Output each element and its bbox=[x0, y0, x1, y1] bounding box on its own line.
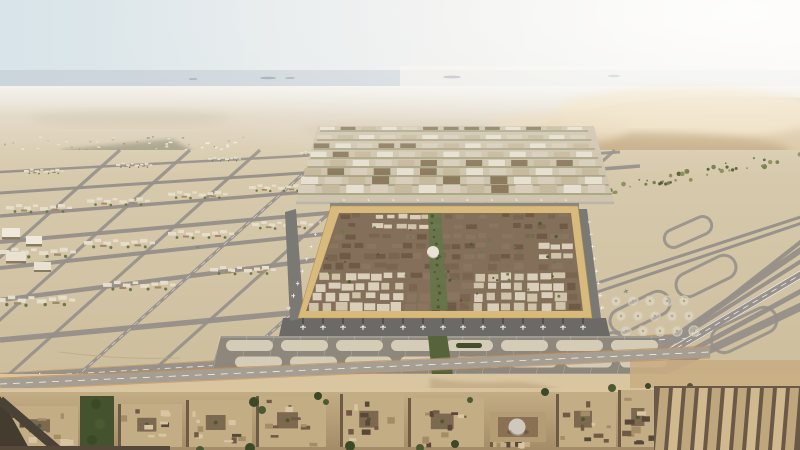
district-block bbox=[467, 185, 484, 193]
tree bbox=[448, 279, 451, 282]
tree bbox=[496, 279, 498, 281]
district-block bbox=[322, 185, 339, 193]
roof bbox=[417, 234, 427, 239]
rooftop-detail bbox=[229, 420, 236, 425]
jet-bridge bbox=[542, 318, 544, 324]
roof bbox=[502, 223, 509, 227]
roof bbox=[395, 283, 403, 290]
roof bbox=[555, 293, 567, 302]
roof bbox=[352, 254, 360, 259]
rooftop-detail bbox=[348, 429, 353, 434]
roof bbox=[381, 283, 389, 290]
tree bbox=[500, 216, 503, 219]
roof bbox=[340, 253, 351, 259]
roof bbox=[447, 292, 460, 300]
jet-bridge bbox=[462, 318, 464, 324]
roof bbox=[384, 273, 393, 278]
roof bbox=[358, 234, 366, 239]
roof bbox=[332, 274, 340, 280]
rooftop-detail bbox=[560, 436, 565, 440]
rooftop-detail bbox=[54, 435, 61, 439]
roof bbox=[323, 264, 331, 270]
roof bbox=[338, 224, 347, 228]
roof bbox=[464, 254, 474, 259]
rooftop-detail bbox=[506, 442, 510, 448]
roof bbox=[562, 244, 573, 250]
district-block bbox=[515, 185, 532, 193]
rooftop-detail bbox=[604, 439, 609, 443]
roof bbox=[528, 303, 537, 310]
rooftop-detail bbox=[301, 424, 306, 427]
roof bbox=[352, 213, 360, 217]
roof bbox=[527, 273, 537, 280]
roof bbox=[384, 225, 392, 229]
roof bbox=[514, 303, 525, 311]
tree bbox=[377, 253, 379, 255]
roof bbox=[513, 215, 523, 220]
shrub bbox=[658, 182, 661, 185]
rooftop-detail bbox=[365, 402, 370, 407]
rooftop-detail bbox=[271, 435, 279, 438]
jet-bridge bbox=[322, 318, 324, 324]
roof bbox=[488, 264, 497, 270]
roof bbox=[391, 302, 401, 311]
roof bbox=[551, 253, 561, 259]
roof bbox=[536, 213, 545, 216]
district-block bbox=[538, 177, 555, 184]
stand-pad bbox=[226, 340, 273, 351]
roof bbox=[467, 215, 474, 218]
roof bbox=[445, 214, 452, 218]
rooftop-detail bbox=[29, 437, 37, 443]
roof bbox=[563, 253, 572, 258]
roof bbox=[479, 223, 490, 228]
rooftop-detail bbox=[291, 417, 301, 420]
roof bbox=[488, 283, 496, 289]
roof bbox=[416, 243, 425, 248]
roof bbox=[369, 234, 379, 238]
roof bbox=[420, 294, 430, 302]
shrub bbox=[644, 183, 647, 186]
shrub bbox=[689, 178, 693, 182]
tree bbox=[476, 293, 478, 295]
roof bbox=[560, 224, 568, 229]
stand-pad bbox=[336, 340, 383, 351]
tree bbox=[529, 235, 532, 238]
roof bbox=[479, 215, 486, 219]
shrub bbox=[653, 181, 656, 184]
roof bbox=[466, 224, 477, 229]
district-block bbox=[588, 185, 605, 193]
jet-bridge bbox=[562, 318, 564, 324]
tree bbox=[438, 291, 441, 294]
roof bbox=[541, 292, 552, 298]
tree bbox=[344, 261, 346, 263]
jet-bridge bbox=[342, 318, 344, 324]
rooftop-detail bbox=[121, 415, 127, 421]
tree bbox=[323, 399, 329, 405]
rooftop-detail bbox=[238, 437, 245, 442]
tree bbox=[553, 261, 556, 264]
roof bbox=[342, 244, 351, 248]
roof bbox=[392, 244, 403, 248]
roof bbox=[539, 243, 550, 249]
district-block bbox=[514, 177, 531, 184]
roof bbox=[549, 224, 559, 228]
rooftop-detail bbox=[148, 435, 154, 437]
roof bbox=[461, 283, 474, 289]
tree bbox=[518, 250, 521, 253]
roof bbox=[374, 263, 386, 268]
roof bbox=[490, 233, 498, 238]
rooftop-detail bbox=[518, 443, 524, 448]
roof bbox=[319, 273, 329, 280]
roof bbox=[526, 263, 536, 269]
tree bbox=[608, 384, 616, 392]
rooftop-detail bbox=[586, 401, 590, 407]
tree bbox=[437, 305, 440, 308]
roof bbox=[450, 263, 459, 269]
tree bbox=[404, 274, 406, 276]
district-block bbox=[372, 177, 389, 184]
roof bbox=[454, 233, 462, 237]
district-block bbox=[585, 177, 602, 184]
district-block bbox=[301, 177, 318, 184]
roof bbox=[515, 292, 525, 300]
rooftop-detail bbox=[163, 412, 170, 416]
tree bbox=[249, 397, 259, 407]
rooftop-detail bbox=[584, 437, 591, 441]
shrub bbox=[667, 181, 670, 184]
tree bbox=[433, 236, 436, 239]
rooftop-detail bbox=[581, 411, 590, 416]
tree bbox=[326, 257, 328, 259]
rooftop-detail bbox=[354, 404, 358, 410]
tree bbox=[645, 383, 651, 389]
district-block bbox=[346, 185, 363, 193]
rooftop-detail bbox=[592, 423, 596, 426]
roof bbox=[501, 293, 511, 300]
roof bbox=[566, 272, 578, 278]
foreground-dome-pavilion bbox=[490, 412, 546, 442]
roof bbox=[342, 284, 354, 291]
tree bbox=[91, 399, 101, 409]
roof bbox=[487, 293, 495, 300]
roof bbox=[334, 235, 343, 240]
roof bbox=[330, 244, 339, 248]
tree bbox=[467, 397, 473, 403]
jet-bridge bbox=[582, 318, 584, 324]
roof bbox=[477, 254, 485, 259]
roof bbox=[316, 284, 326, 292]
tree bbox=[550, 279, 553, 282]
roof bbox=[348, 223, 355, 227]
rooftop-detail bbox=[622, 431, 631, 436]
district-block bbox=[490, 177, 507, 184]
tree bbox=[451, 440, 459, 448]
airport-render: Aerial CGI render of a vast desert airpo… bbox=[0, 0, 800, 450]
roof bbox=[364, 214, 372, 218]
tree bbox=[561, 230, 563, 232]
rooftop-detail bbox=[451, 412, 458, 415]
tree bbox=[431, 214, 435, 218]
roof bbox=[562, 234, 569, 239]
roof bbox=[346, 273, 356, 280]
roof bbox=[489, 223, 498, 227]
rooftop-detail bbox=[38, 418, 47, 421]
roof bbox=[527, 294, 537, 302]
roof bbox=[380, 244, 388, 249]
jet-bridge bbox=[362, 318, 364, 324]
tree bbox=[508, 279, 511, 282]
tree bbox=[569, 262, 571, 264]
roof bbox=[514, 263, 523, 270]
roof bbox=[360, 224, 367, 229]
jet-bridge bbox=[522, 318, 524, 324]
roof bbox=[525, 213, 534, 217]
roof bbox=[452, 254, 460, 259]
tree bbox=[95, 419, 105, 429]
roof bbox=[559, 213, 568, 216]
rooftop-detail bbox=[285, 407, 293, 412]
roof bbox=[452, 244, 461, 249]
roof bbox=[367, 244, 376, 249]
roof bbox=[537, 224, 546, 229]
roof bbox=[548, 214, 555, 218]
roof bbox=[364, 253, 376, 259]
roof bbox=[326, 293, 336, 302]
roof bbox=[335, 263, 343, 270]
rooftop-detail bbox=[60, 439, 68, 446]
rooftop-detail bbox=[232, 434, 241, 437]
rooftop-detail bbox=[265, 424, 273, 429]
roof bbox=[513, 223, 521, 228]
tree bbox=[470, 243, 473, 246]
rooftop-detail bbox=[160, 422, 168, 425]
rooftop-detail bbox=[349, 438, 356, 441]
tree bbox=[465, 302, 468, 305]
planted-pad bbox=[456, 343, 482, 348]
tree bbox=[348, 280, 352, 284]
roof bbox=[345, 235, 355, 240]
district-block bbox=[491, 185, 508, 193]
roof bbox=[540, 284, 552, 291]
roof bbox=[476, 243, 485, 248]
jet-bridge bbox=[502, 318, 504, 324]
roof bbox=[355, 243, 364, 248]
roof bbox=[489, 254, 500, 261]
roof bbox=[525, 224, 533, 229]
roof bbox=[553, 272, 565, 278]
roof bbox=[567, 283, 575, 290]
district-block bbox=[325, 177, 342, 184]
district-block bbox=[443, 177, 460, 184]
district-block bbox=[419, 185, 436, 193]
tree bbox=[435, 243, 438, 246]
roof bbox=[542, 303, 552, 311]
roof bbox=[393, 293, 403, 300]
rooftop-detail bbox=[309, 443, 317, 447]
roof bbox=[409, 284, 417, 291]
rooftop-detail bbox=[624, 398, 631, 401]
rooftop-detail bbox=[642, 416, 650, 421]
rooftop-detail bbox=[433, 410, 440, 413]
roof bbox=[399, 214, 408, 219]
rooftop-detail bbox=[497, 443, 501, 448]
roof bbox=[476, 263, 486, 270]
district-block bbox=[396, 177, 413, 184]
tree bbox=[430, 222, 433, 225]
shrub bbox=[646, 180, 648, 182]
rooftop-detail bbox=[374, 426, 378, 430]
roof bbox=[466, 235, 476, 240]
roof bbox=[408, 224, 417, 229]
tree bbox=[433, 229, 435, 231]
roof bbox=[569, 304, 581, 310]
rooftop-detail bbox=[594, 434, 604, 438]
roof bbox=[397, 272, 405, 277]
roof bbox=[513, 235, 524, 240]
roof bbox=[539, 264, 549, 270]
shrub bbox=[629, 186, 631, 188]
shrub bbox=[621, 182, 626, 187]
rooftop-detail bbox=[360, 413, 368, 417]
roof bbox=[313, 293, 322, 301]
tree bbox=[555, 235, 558, 238]
stand-pad bbox=[281, 340, 328, 351]
roof bbox=[410, 215, 421, 219]
roof bbox=[456, 214, 464, 219]
tree bbox=[434, 271, 436, 273]
jet-bridge bbox=[442, 318, 444, 324]
rooftop-detail bbox=[362, 429, 371, 434]
tree bbox=[447, 270, 450, 273]
roof bbox=[501, 283, 511, 289]
roof bbox=[327, 254, 337, 261]
roof bbox=[564, 263, 575, 270]
tree bbox=[541, 388, 549, 396]
tree bbox=[436, 278, 438, 280]
roof bbox=[478, 233, 486, 238]
roof bbox=[358, 273, 370, 279]
roof bbox=[412, 264, 421, 269]
tree bbox=[435, 263, 438, 266]
tree bbox=[437, 299, 439, 301]
roof bbox=[465, 243, 475, 248]
stand-pad bbox=[501, 340, 548, 351]
roof bbox=[366, 292, 376, 298]
roof bbox=[556, 302, 566, 310]
roof bbox=[474, 294, 483, 302]
district-block bbox=[540, 185, 557, 193]
roof bbox=[463, 264, 472, 271]
rooftop-detail bbox=[365, 420, 370, 426]
rooftop-detail bbox=[422, 437, 429, 444]
roof bbox=[407, 293, 416, 301]
rooftop-detail bbox=[197, 420, 200, 423]
roof bbox=[355, 283, 364, 290]
roof bbox=[514, 274, 523, 281]
district-block bbox=[370, 185, 387, 193]
rooftop-detail bbox=[448, 425, 453, 431]
rooftop-detail bbox=[625, 420, 635, 425]
roof bbox=[380, 294, 389, 300]
roof bbox=[371, 274, 382, 281]
roof bbox=[336, 302, 348, 311]
roof bbox=[397, 224, 407, 229]
roof bbox=[474, 303, 482, 312]
rooftop-detail bbox=[607, 425, 611, 428]
tree bbox=[538, 222, 542, 226]
tree bbox=[514, 246, 516, 248]
tree bbox=[416, 300, 418, 302]
tree bbox=[373, 226, 376, 229]
tree bbox=[506, 273, 509, 276]
roof bbox=[568, 294, 577, 300]
roof bbox=[387, 264, 398, 270]
roof bbox=[403, 243, 412, 249]
roof bbox=[421, 283, 430, 290]
roof bbox=[405, 304, 416, 311]
roof bbox=[501, 303, 510, 310]
tree bbox=[527, 288, 529, 290]
roof bbox=[401, 253, 412, 258]
rooftop-detail bbox=[631, 426, 640, 433]
warehouse-rows bbox=[654, 386, 800, 450]
district-block bbox=[298, 185, 315, 193]
roof bbox=[443, 224, 454, 229]
rooftop-detail bbox=[224, 440, 233, 442]
tree bbox=[437, 285, 440, 288]
rooftop-detail bbox=[346, 410, 352, 415]
roof bbox=[418, 303, 429, 310]
rooftop-detail bbox=[67, 440, 73, 446]
rooftop-detail bbox=[267, 400, 272, 403]
district-block bbox=[443, 185, 460, 193]
rooftop-detail bbox=[636, 440, 642, 443]
roof bbox=[350, 302, 363, 311]
roof bbox=[376, 215, 383, 219]
roof bbox=[501, 254, 510, 258]
tree bbox=[507, 265, 510, 268]
tree bbox=[328, 272, 331, 275]
roof bbox=[502, 234, 513, 238]
roof bbox=[389, 253, 400, 259]
tree bbox=[552, 275, 554, 277]
roof bbox=[514, 283, 522, 291]
roof bbox=[362, 264, 371, 270]
district-block bbox=[564, 185, 581, 193]
roof bbox=[368, 282, 379, 290]
roof bbox=[553, 283, 564, 291]
tree bbox=[341, 230, 343, 232]
tree bbox=[87, 435, 97, 445]
rooftop-detail bbox=[198, 426, 204, 431]
jet-bridge bbox=[382, 318, 384, 324]
tree bbox=[488, 238, 491, 241]
rooftop-detail bbox=[458, 414, 464, 418]
roof bbox=[349, 263, 360, 269]
district-block bbox=[467, 177, 484, 184]
shrub bbox=[612, 191, 615, 194]
roof bbox=[448, 284, 459, 291]
roof bbox=[490, 213, 499, 217]
tree bbox=[410, 229, 412, 231]
roof bbox=[454, 225, 463, 229]
jet-bridge bbox=[302, 318, 304, 324]
rooftop-detail bbox=[159, 434, 167, 437]
shrub bbox=[674, 179, 677, 182]
